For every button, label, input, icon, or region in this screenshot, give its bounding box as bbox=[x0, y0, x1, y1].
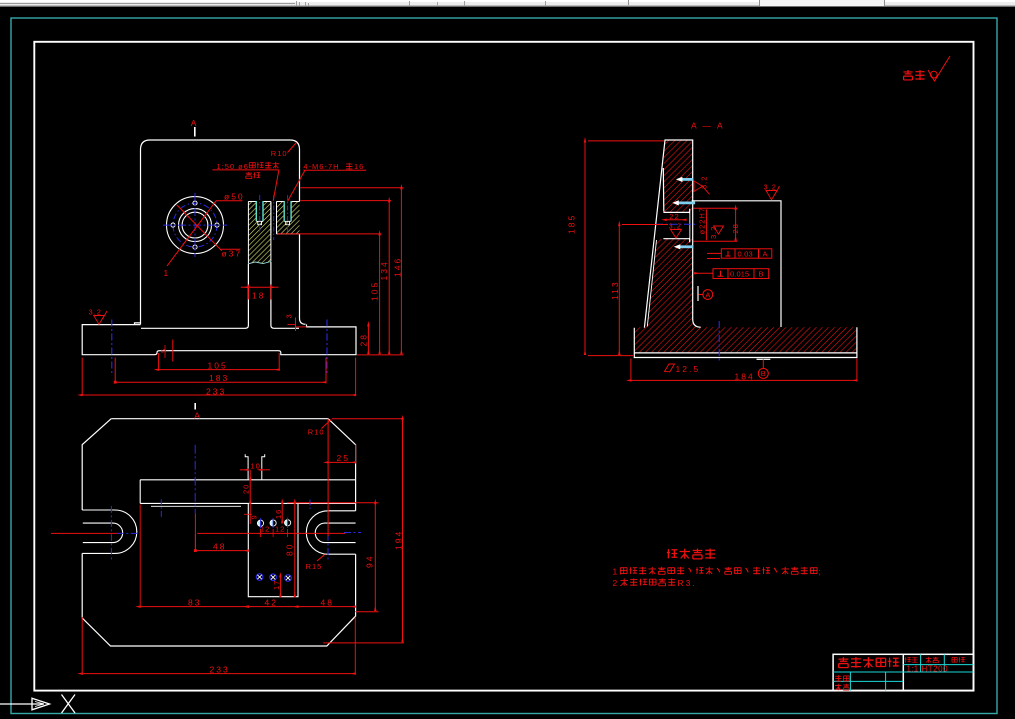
svg-text:ø22H7: ø22H7 bbox=[698, 207, 707, 235]
svg-text:25: 25 bbox=[337, 453, 350, 463]
svg-text:A: A bbox=[705, 290, 710, 299]
svg-text:3: 3 bbox=[285, 313, 294, 318]
svg-text:0.03: 0.03 bbox=[738, 250, 753, 259]
svg-text:HT200: HT200 bbox=[922, 664, 949, 673]
svg-text:83: 83 bbox=[188, 598, 201, 608]
svg-text:R3.: R3. bbox=[678, 578, 697, 588]
svg-text:20: 20 bbox=[242, 484, 251, 494]
svg-text:10: 10 bbox=[251, 462, 261, 471]
svg-text:R10: R10 bbox=[271, 149, 288, 158]
svg-text:R10: R10 bbox=[308, 428, 325, 437]
svg-text:22: 22 bbox=[669, 212, 679, 221]
svg-text:233: 233 bbox=[210, 665, 230, 675]
svg-text:9: 9 bbox=[250, 514, 259, 519]
svg-text:A: A bbox=[194, 411, 202, 421]
svg-text:3.2: 3.2 bbox=[709, 226, 718, 239]
svg-text:A: A bbox=[763, 250, 769, 259]
svg-text:28: 28 bbox=[359, 333, 369, 346]
svg-text:105: 105 bbox=[370, 281, 380, 301]
svg-text:42: 42 bbox=[265, 598, 278, 608]
svg-text:12: 12 bbox=[260, 525, 270, 534]
svg-text:ø50: ø50 bbox=[224, 192, 245, 202]
svg-text:B: B bbox=[759, 270, 765, 279]
svg-text:R15: R15 bbox=[306, 562, 323, 571]
svg-text:5: 5 bbox=[159, 348, 168, 353]
svg-text:A: A bbox=[191, 118, 199, 128]
svg-text:ø37: ø37 bbox=[222, 248, 243, 258]
svg-text:16: 16 bbox=[274, 509, 283, 519]
svg-text:3.2: 3.2 bbox=[764, 182, 777, 191]
svg-text:A — A: A — A bbox=[691, 120, 725, 130]
svg-text:B: B bbox=[761, 369, 766, 378]
svg-text:0.015: 0.015 bbox=[730, 270, 749, 279]
svg-text:12: 12 bbox=[275, 525, 285, 534]
svg-text:134: 134 bbox=[379, 260, 389, 280]
svg-text:105: 105 bbox=[208, 360, 228, 370]
svg-text:17: 17 bbox=[272, 580, 281, 590]
svg-text:146: 146 bbox=[393, 257, 403, 277]
svg-text:185: 185 bbox=[567, 214, 577, 234]
svg-text:184: 184 bbox=[735, 371, 755, 381]
svg-text:18: 18 bbox=[252, 291, 265, 301]
svg-text:2.: 2. bbox=[613, 578, 624, 588]
svg-text:;: ; bbox=[819, 567, 823, 577]
svg-text:48: 48 bbox=[321, 598, 334, 608]
svg-text:194: 194 bbox=[394, 530, 404, 550]
svg-text:48: 48 bbox=[213, 541, 226, 551]
svg-text:1:1: 1:1 bbox=[907, 664, 919, 673]
svg-text:113: 113 bbox=[610, 280, 620, 300]
svg-text:233: 233 bbox=[206, 386, 226, 396]
svg-text:12.5: 12.5 bbox=[676, 364, 701, 374]
svg-text:183: 183 bbox=[209, 373, 229, 383]
svg-text:1: 1 bbox=[164, 268, 171, 278]
svg-text:80: 80 bbox=[284, 543, 294, 556]
svg-text:94: 94 bbox=[364, 555, 374, 568]
svg-text:28: 28 bbox=[731, 223, 740, 233]
